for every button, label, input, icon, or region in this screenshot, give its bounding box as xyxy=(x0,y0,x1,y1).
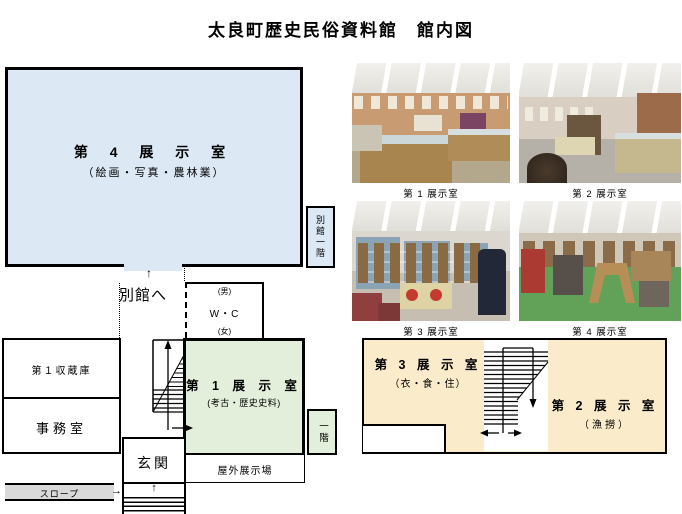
outdoor-exhibit-label: 屋外展示場 xyxy=(186,462,304,477)
office-room: 事務室 xyxy=(2,397,121,454)
photo4-red-machine xyxy=(521,249,545,293)
exhibit-room-1-label: 第 1 展 示 室 (考古・歴史史料) xyxy=(186,375,302,409)
storage-room-1-label: 第１収蔵庫 xyxy=(4,362,119,377)
photo4-caption: 第 4 展示室 xyxy=(519,324,681,338)
exhibit-room-4-label: 第 4 展 示 室 （絵画・写真・農林業） xyxy=(8,142,300,180)
annex-first-floor-box: 別館一階 xyxy=(306,206,335,268)
wc-female-label: (女) xyxy=(187,326,262,337)
photo3-red-circle xyxy=(406,289,418,301)
page-title: 太良町歴史民俗資料館 館内図 xyxy=(0,16,682,41)
photo1-caption: 第 1 展示室 xyxy=(352,186,510,200)
right-arrow-icon: → xyxy=(111,485,122,497)
photo-exhibit-room-4 xyxy=(519,201,681,321)
staircase-floor2 xyxy=(474,340,554,452)
outdoor-exhibit-area: 屋外展示場 xyxy=(185,455,305,483)
annex-first-floor-label: 別館一階 xyxy=(308,208,333,266)
photo-exhibit-room-2 xyxy=(519,63,681,183)
storage-room-1: 第１収蔵庫 xyxy=(2,338,121,399)
photo1-glass-cabinet xyxy=(352,125,382,151)
photo2-caption: 第 2 展示室 xyxy=(519,186,681,200)
exhibit-room-2-label: 第 2 展 示 室 （漁撈） xyxy=(546,395,664,431)
photo2-iron-pot xyxy=(527,153,567,183)
photo-exhibit-room-3 xyxy=(352,201,510,321)
exhibit-room-3-name: 第 3 展 示 室 xyxy=(370,354,486,373)
up-arrow-icon: ↑ xyxy=(146,266,152,280)
photo1-display-case xyxy=(448,129,510,161)
photo3-caption: 第 3 展示室 xyxy=(352,324,510,338)
second-floor-void xyxy=(363,424,446,452)
entrance-label: 玄関 xyxy=(124,453,184,473)
exhibit-room-4-subtitle: （絵画・写真・農林業） xyxy=(8,164,300,180)
exhibit-room-2-name: 第 2 展 示 室 xyxy=(546,395,664,414)
to-annex-label: 別館へ xyxy=(119,284,185,305)
photo1-poster xyxy=(460,113,486,130)
wc-room: (男) W・C (女) xyxy=(185,282,264,338)
exhibit-room-4: 第 4 展 示 室 （絵画・写真・農林業） xyxy=(5,67,303,267)
staircase-floor1 xyxy=(148,336,194,436)
wc-male-label: (男) xyxy=(187,286,262,297)
slope-ramp: スロープ xyxy=(5,483,114,501)
photo2-display-base xyxy=(555,137,595,155)
photo-exhibit-room-1 xyxy=(352,63,510,183)
exhibit-room-3-subtitle: （衣・食・住） xyxy=(370,375,486,390)
photo1-wall-pictures xyxy=(354,96,508,109)
photo3-red-circle xyxy=(430,289,442,301)
museum-floor-map-page: 太良町歴史民俗資料館 館内図 第 4 展 示 室 （絵画・写真・農林業） 別館一… xyxy=(0,0,682,514)
room4-doorway-opening xyxy=(124,259,182,271)
exhibit-room-1-subtitle: (考古・歴史史料) xyxy=(186,396,302,409)
entrance-steps: ↑ xyxy=(122,484,186,514)
photo4-wooden-bench xyxy=(631,251,671,281)
exhibit-room-3-label: 第 3 展 示 室 （衣・食・住） xyxy=(370,354,486,390)
photo3-dark-coat xyxy=(478,249,506,315)
exhibit-room-2-subtitle: （漁撈） xyxy=(546,416,664,431)
first-floor-box: 一階 xyxy=(307,409,337,455)
photo2-display-counter xyxy=(615,133,681,173)
photo4-equipment xyxy=(639,281,669,307)
photo4-dark-machine xyxy=(553,255,583,295)
wc-label: W・C xyxy=(187,305,262,320)
exhibit-room-1-name: 第 1 展 示 室 xyxy=(186,375,302,394)
photo3-red-chair xyxy=(378,303,400,321)
office-room-label: 事務室 xyxy=(4,418,119,437)
first-floor-label: 一階 xyxy=(309,411,335,453)
exhibit-room-4-name: 第 4 展 示 室 xyxy=(8,142,300,162)
entrance-step-lines xyxy=(124,497,184,514)
slope-label: スロープ xyxy=(5,487,114,500)
photo3-shelf-baskets xyxy=(358,243,486,283)
exhibit-room-1: 第 1 展 示 室 (考古・歴史史料) xyxy=(183,338,305,456)
photo1-panel xyxy=(414,115,442,131)
dotted-wall-line xyxy=(184,268,185,281)
entrance-room: 玄関 xyxy=(122,437,186,484)
